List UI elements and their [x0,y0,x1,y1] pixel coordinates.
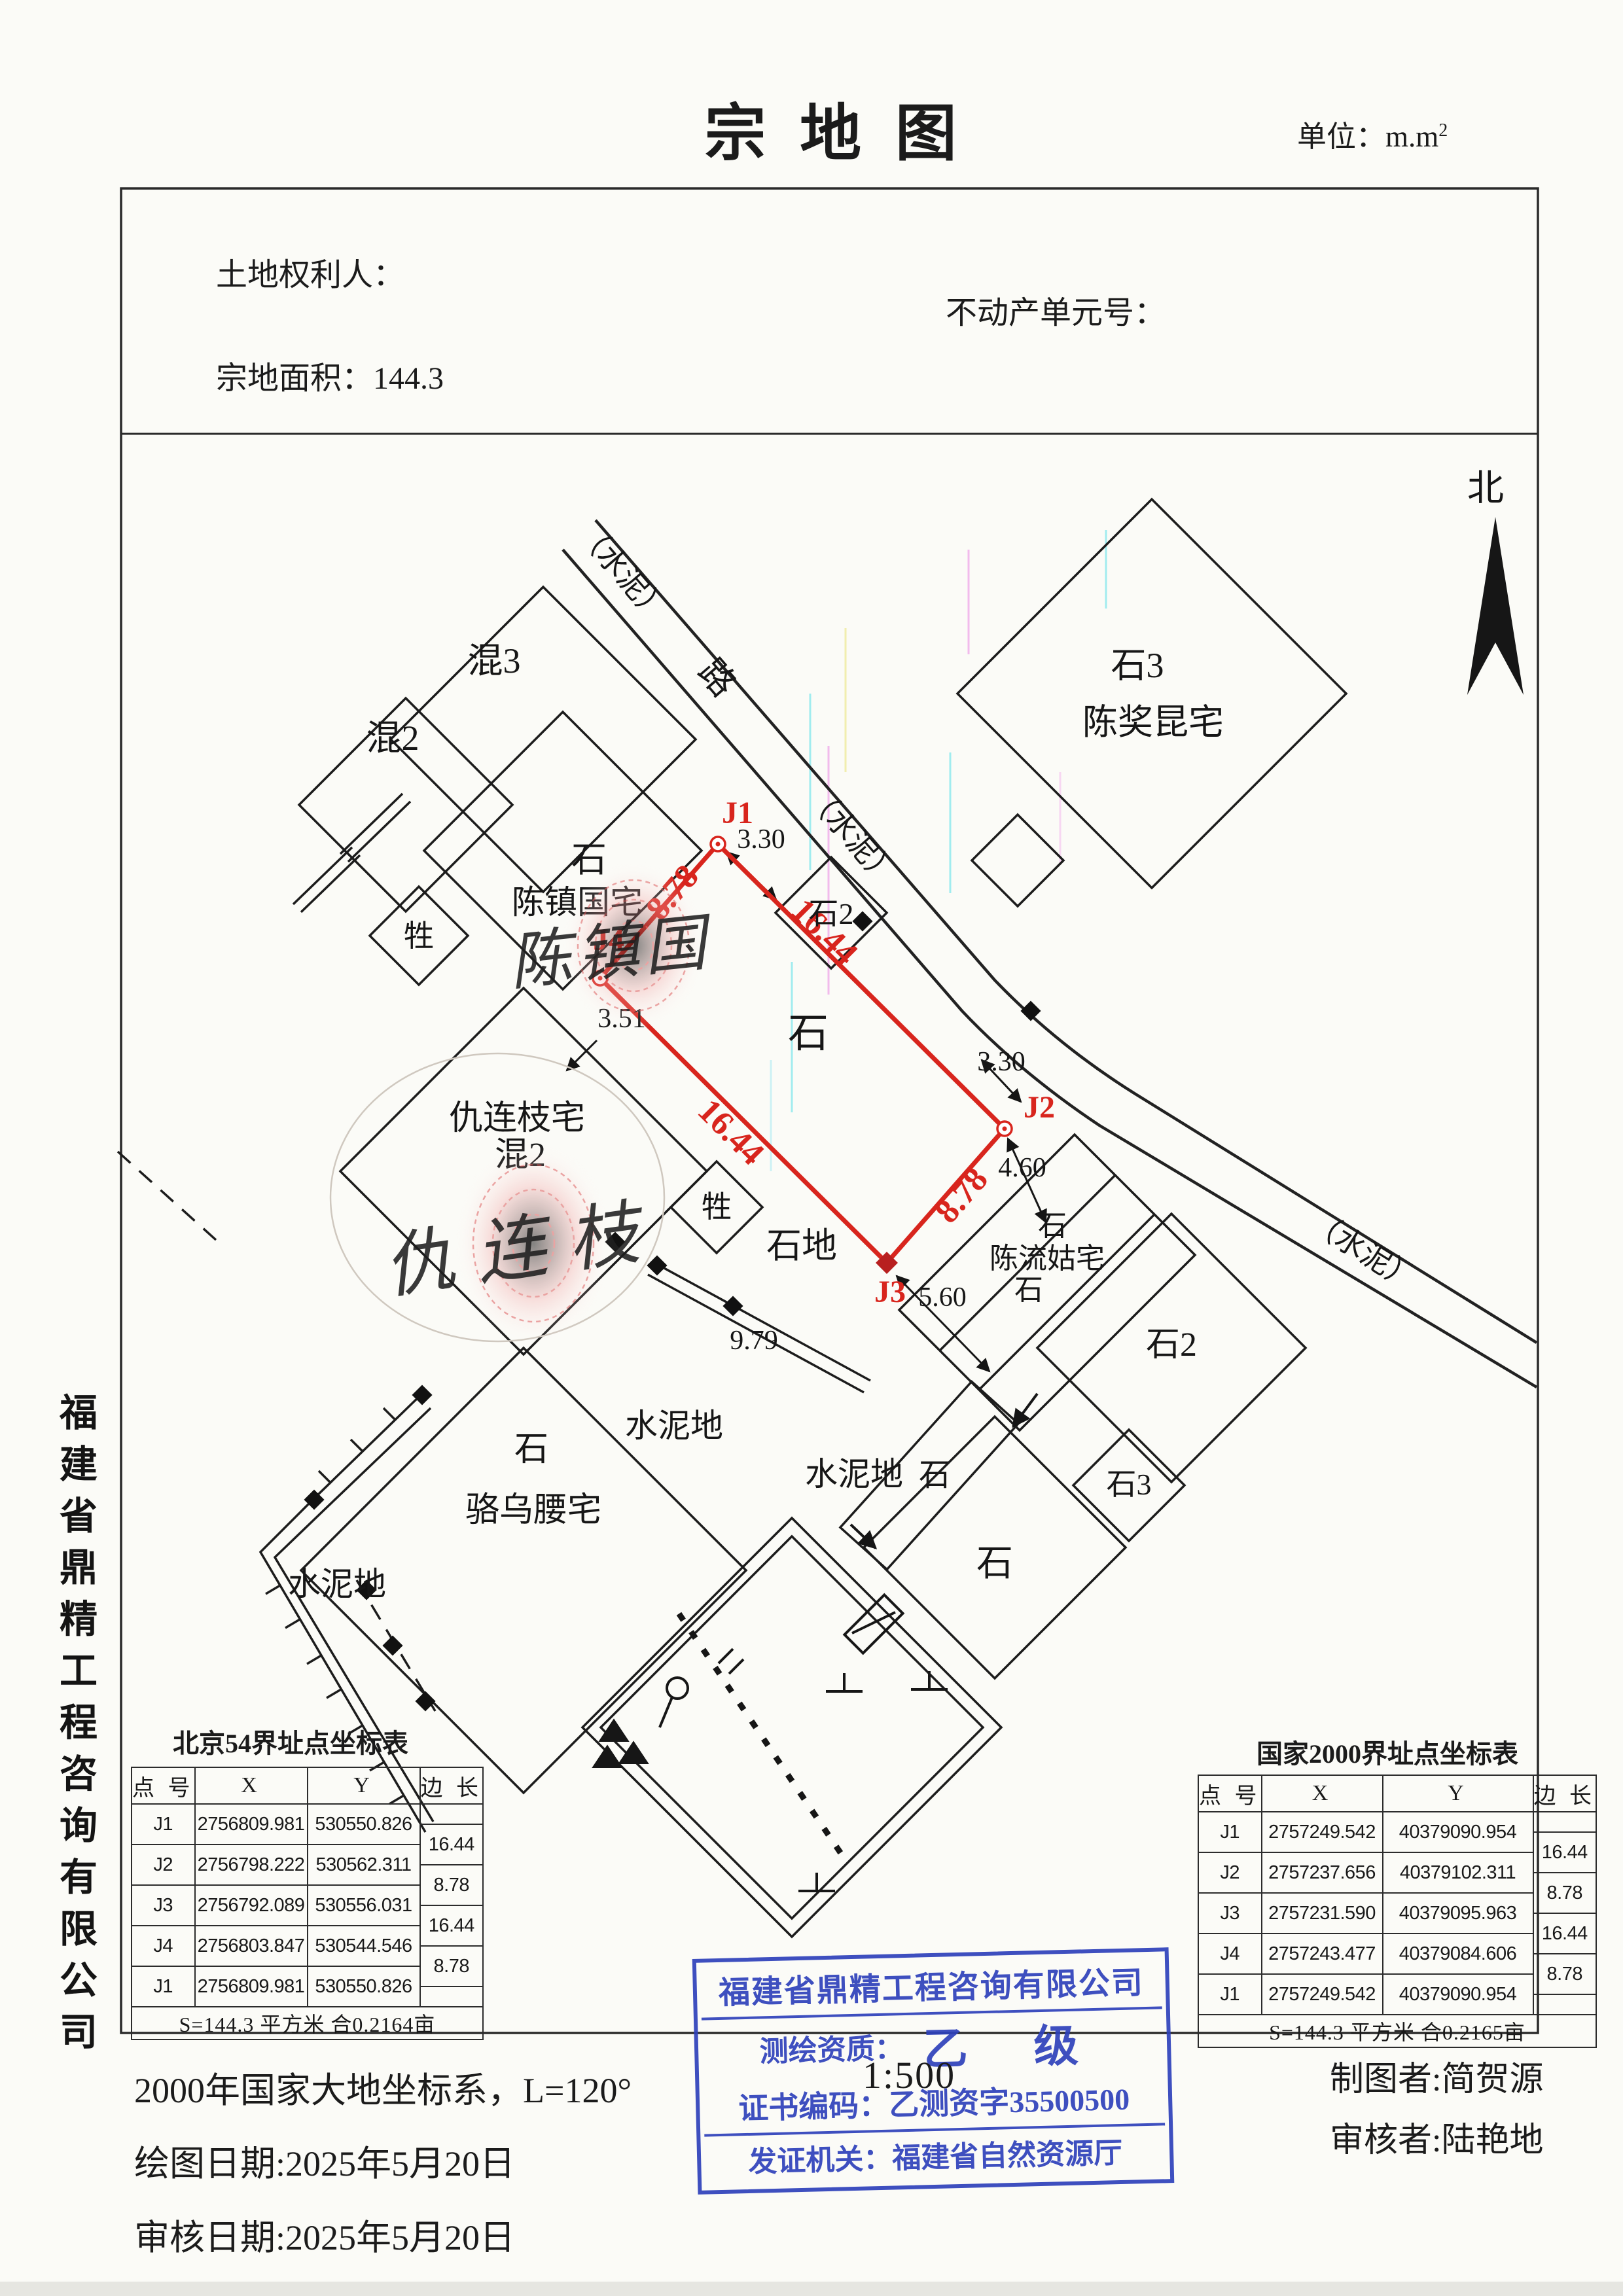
table-cell: 8.78 [420,1865,484,1905]
label-shuinidi-mid: 水泥地 [625,1407,723,1444]
label-qiulianzhi: 仇连枝宅 [449,1100,585,1137]
table-cell: 8.78 [1533,1954,1597,1994]
table-cell: J1 [1198,1974,1262,2015]
table-cell: J1 [1198,1812,1262,1852]
table-cell: 2757237.656 [1262,1852,1383,1893]
label-shi3-se: 石3 [1107,1468,1152,1501]
bj54-area-footer: S=144.3 平方米 合0.2164亩 [132,2007,483,2040]
label-clg-bottom: 石 [1014,1274,1043,1306]
bj54-h-y: Y [308,1767,420,1804]
north-arrow-icon [1467,517,1524,695]
table-cell [1533,1812,1597,1832]
label-shuinidi-mid2: 水泥地 [805,1456,903,1492]
label-shi3-ne: 石3 [1111,646,1164,685]
dim-330a: 3.30 [737,824,785,855]
cgcs-h-y: Y [1383,1775,1533,1812]
table-cell: 2757243.477 [1262,1934,1383,1974]
estate-no-label: 不动产单元号： [946,287,1166,332]
cgcs2000-table-title: 国家2000界址点坐标表 [1198,1733,1577,1771]
table-cell: 8.78 [1533,1873,1597,1913]
table-cell: 530550.826 [308,1966,420,2007]
table-cell: 530556.031 [308,1885,420,1926]
cgcs2000-table: 点 号 X Y 边 长 J1 2757249.542 40379090.954 … [1198,1775,1597,2048]
map-scale: 1:500 [863,2053,955,2097]
table-cell: 2757249.542 [1262,1812,1383,1852]
label-shi-strip: 石 [919,1458,950,1492]
label-sheng2: 牲 [702,1190,732,1224]
corner-j3-label: J3 [874,1275,906,1309]
table-cell: 40379090.954 [1383,1974,1533,2015]
enclosure [582,1518,1001,1937]
dim-330b: 3.30 [977,1047,1026,1077]
table-cell: 16.44 [420,1905,484,1946]
table-cell: J1 [132,1804,195,1845]
table-cell: 530544.546 [308,1926,420,1966]
dim-460: 4.60 [998,1153,1046,1183]
edge-j4j3-label: 16.44 [690,1092,771,1173]
table-cell: 530550.826 [308,1804,420,1845]
parcel-map-document: J1 J2 J3 J4 8.78 16.44 16.44 8.78 （水泥） 路… [0,0,1623,2296]
table-cell: J3 [132,1885,195,1926]
table-cell: 2757249.542 [1262,1974,1383,2015]
dim-979: 9.79 [730,1326,778,1356]
unit-prefix: 单位：m.m [1297,120,1438,153]
area-label: 宗地面积：144.3 [216,352,444,398]
table-cell: 16.44 [1533,1832,1597,1873]
reviewer: 审核者:陆艳地 [1330,2112,1543,2161]
label-shi2-road: 石2 [809,897,854,930]
building-hun3 [391,587,696,892]
table-cell [420,1804,484,1824]
table-cell: 40379095.963 [1383,1893,1533,1934]
review-date: 审核日期:2025年5月20日 [134,2208,515,2260]
edge-j2j3-label: 8.78 [928,1161,995,1230]
stamp-issuer-value: 福建省自然资源厅 [891,2129,1122,2177]
bj54-h-point: 点 号 [132,1767,195,1804]
table-cell: 530562.311 [308,1845,420,1885]
label-hun3: 混3 [468,641,521,680]
table-cell: 2756792.089 [195,1885,308,1926]
table-cell: J4 [132,1926,195,1966]
table-cell: J4 [1198,1934,1262,1974]
page-title: 宗地图 [586,84,1109,173]
dim-560: 5.60 [918,1282,967,1313]
owner-label: 土地权利人： [216,249,404,294]
scan-artifacts [771,530,1106,1171]
unit-exponent: 2 [1438,120,1448,141]
label-shi-big: 石 [976,1544,1013,1584]
table-cell: 2756809.981 [195,1804,308,1845]
label-clg-top: 石 [1038,1210,1067,1242]
corner-j2-label: J2 [1024,1090,1055,1125]
label-chenliugu: 陈流姑宅 [990,1243,1105,1275]
north-label: 北 [1467,468,1504,509]
north-arrow: 北 [1467,468,1524,695]
label-luowuyao: 骆乌腰宅 [465,1491,601,1529]
table-cell: J1 [132,1966,195,2007]
table-cell: 2756798.222 [195,1845,308,1885]
cgcs-h-x: X [1262,1775,1383,1812]
table-cell: 2756803.847 [195,1926,308,1966]
road-char: 路 [690,652,743,704]
bj54-h-edge: 边 长 [420,1767,484,1804]
cgcs-h-point: 点 号 [1198,1775,1262,1812]
scan-edge-shadow [0,2282,1623,2296]
table-cell [1533,1994,1597,2015]
table-cell: 2756809.981 [195,1966,308,2007]
table-cell: 8.78 [420,1946,484,1987]
label-hun2: 混2 [366,718,419,758]
table-cell: 40379090.954 [1383,1812,1533,1852]
label-shi2-se: 石2 [1146,1326,1197,1364]
stamp-issuer-label: 发证机关： [747,2135,892,2180]
table-cell: J2 [1198,1852,1262,1893]
building-chenjiangkun [957,499,1346,888]
unit-note: 单位：m.m2 [1297,113,1448,155]
map-labels: （水泥） 路 （水泥） （水泥） 混3 混2 石3 陈奖昆宅 石 陈镇国宅 牲 … [288,516,1423,1602]
road-cement-top: （水泥） [571,516,675,629]
label-sheng1: 牲 [404,919,434,953]
label-shidi: 石地 [766,1226,837,1265]
draw-date: 绘图日期:2025年5月20日 [134,2134,515,2186]
bj54-table: 点 号 X Y 边 长 J1 2756809.981 530550.826 16… [131,1767,484,2040]
table-cell: 16.44 [420,1824,484,1865]
cartographer: 制图者:简贺源 [1330,2051,1543,2100]
table-cell: 16.44 [1533,1913,1597,1954]
table-cell: 40379084.606 [1383,1934,1533,1974]
cgcs2000-area-footer: S=144.3 平方米 合0.2165亩 [1198,2015,1596,2047]
table-cell: 2757231.590 [1262,1893,1383,1934]
bj54-table-title: 北京54界址点坐标表 [131,1722,450,1760]
table-cell: 40379102.311 [1383,1852,1533,1893]
table-cell [420,1987,484,2007]
label-shi-lwy: 石 [514,1431,548,1468]
table-cell: J3 [1198,1893,1262,1934]
cgcs-h-edge: 边 长 [1533,1775,1597,1812]
label-chenjiangkun: 陈奖昆宅 [1082,703,1224,742]
coord-system-note: 2000年国家大地坐标系，L=120° [134,2061,632,2113]
bj54-h-x: X [195,1767,308,1804]
label-shuinidi-left: 水泥地 [288,1566,386,1602]
parcel-land-type: 石 [788,1012,829,1056]
table-cell: J2 [132,1845,195,1885]
company-sidebar: 福建省鼎精工程咨询有限公司 [47,1392,102,2106]
road-cement-mid: （水泥） [800,780,904,892]
